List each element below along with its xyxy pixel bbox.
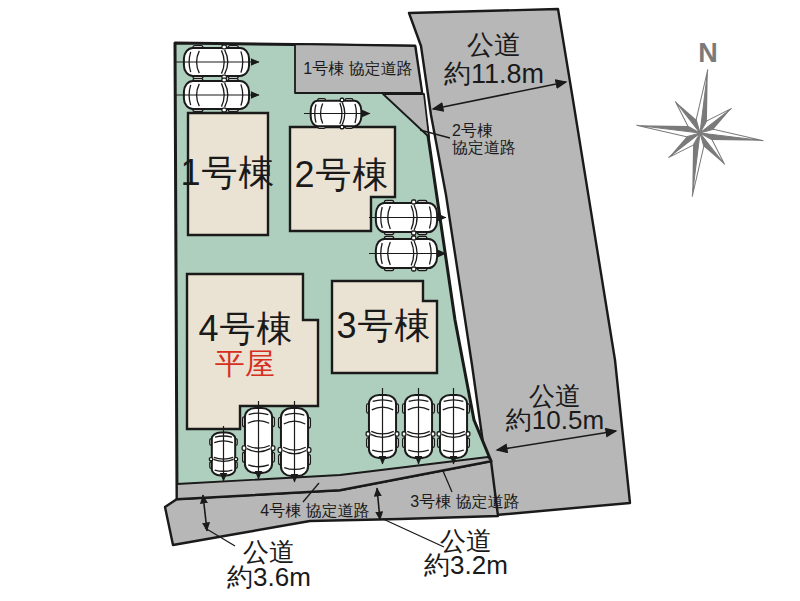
label-public-road-3-6m: 公道 約3.6m xyxy=(227,540,311,590)
public-road-width: 約3.6m xyxy=(227,565,311,590)
site-plan: 1号棟 協定道路 2号棟 協定道路 公道 約11.8m 公道 約10.5m 4号… xyxy=(0,0,800,601)
building-2-label: 2号棟 xyxy=(294,155,389,195)
compass-rose-icon xyxy=(629,62,772,205)
building-3-label: 3号棟 xyxy=(336,306,431,346)
public-road-width: 約10.5m xyxy=(506,408,604,432)
public-road-width: 約3.2m xyxy=(424,553,508,577)
compass-north-label: N xyxy=(698,39,718,69)
label-kyotei-road-2: 2号棟 協定道路 xyxy=(452,122,516,156)
label-kyotei-road-3: 3号棟 協定道路 xyxy=(410,493,519,511)
label-kyotei-road-4: 4号棟 協定道路 xyxy=(260,502,369,520)
label-public-road-3-2m: 公道 約3.2m xyxy=(424,529,508,577)
building-4-label: 4号棟 xyxy=(198,309,293,349)
building-4-note: 平屋 xyxy=(215,347,275,380)
building-1-label: 1号棟 xyxy=(180,153,275,193)
label-kyotei-road-2-line2: 協定道路 xyxy=(452,139,516,156)
label-public-road-11-8m: 公道 約11.8m xyxy=(444,31,544,89)
label-kyotei-road-2-line1: 2号棟 xyxy=(452,122,516,139)
label-public-road-10-5m: 公道 約10.5m xyxy=(506,384,604,432)
label-kyotei-road-1: 1号棟 協定道路 xyxy=(303,60,412,78)
site-plan-drawing xyxy=(0,0,800,601)
public-road-name: 公道 xyxy=(444,31,544,60)
public-road-width: 約11.8m xyxy=(444,60,544,89)
